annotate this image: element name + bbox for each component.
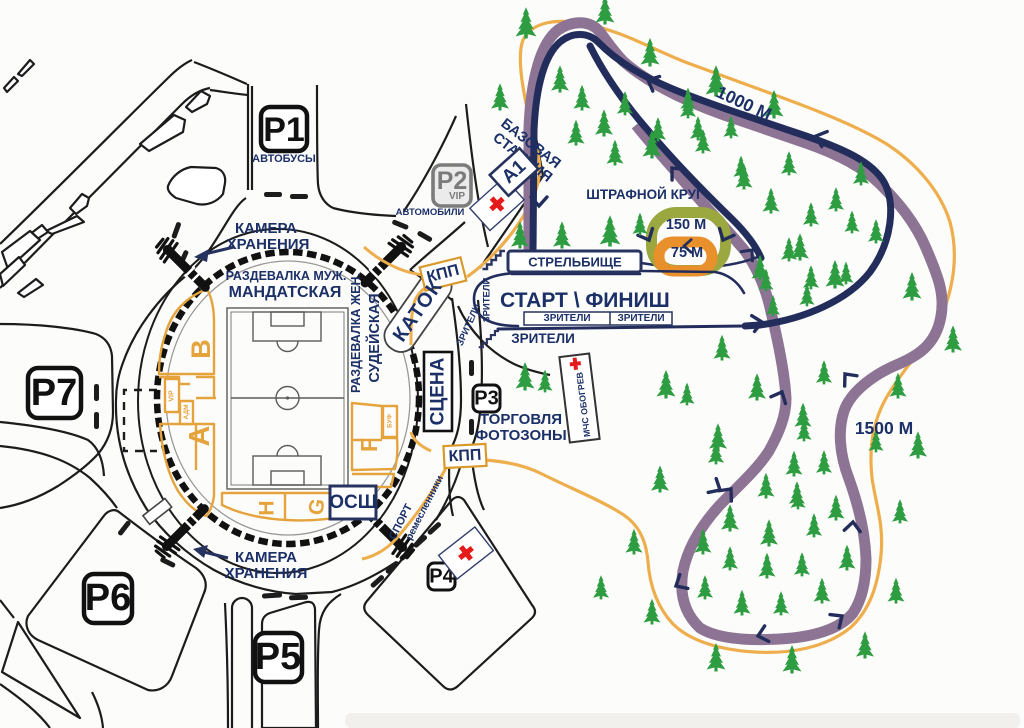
svg-text:Н: Н [256,500,279,515]
svg-text:Р6: Р6 [85,577,131,619]
svg-text:ТОРГОВЛЯ: ТОРГОВЛЯ [480,411,562,428]
svg-text:ХРАНЕНИЯ: ХРАНЕНИЯ [225,565,308,582]
svg-text:ЗРИТЕЛИ: ЗРИТЕЛИ [543,313,590,324]
svg-text:ЗРИТЕЛИ: ЗРИТЕЛИ [617,313,664,324]
svg-text:ФОТОЗОНЫ: ФОТОЗОНЫ [475,427,566,444]
svg-text:БУФ: БУФ [387,414,394,428]
svg-text:СУДЕЙСКАЯ: СУДЕЙСКАЯ [365,293,383,382]
svg-text:Р1: Р1 [263,111,305,149]
svg-text:КАМЕРА: КАМЕРА [235,220,297,237]
svg-text:Р3: Р3 [474,388,498,410]
svg-text:РАЗДЕВАЛКА МУЖ.: РАЗДЕВАЛКА МУЖ. [226,269,347,283]
svg-text:75 М: 75 М [671,245,703,261]
svg-text:ЗРИТЕЛИ: ЗРИТЕЛИ [511,331,575,346]
svg-text:ШТРАФНОЙ КРУГ: ШТРАФНОЙ КРУГ [586,187,704,202]
svg-text:КАМЕРА: КАМЕРА [235,549,297,566]
svg-text:В: В [186,339,216,359]
svg-text:МАНДАТСКАЯ: МАНДАТСКАЯ [229,284,342,301]
svg-text:VIP: VIP [169,390,176,402]
svg-text:F: F [356,438,382,452]
svg-text:ОСШ: ОСШ [329,492,377,513]
svg-text:Р5: Р5 [255,636,301,678]
svg-text:СТАРТ \ ФИНИШ: СТАРТ \ ФИНИШ [500,289,670,312]
svg-text:СТРЕЛЬБИЩЕ: СТРЕЛЬБИЩЕ [528,255,622,270]
svg-text:АВТОБУСЫ: АВТОБУСЫ [252,153,316,165]
svg-text:VIP: VIP [449,191,465,202]
svg-text:АВТОМОБИЛИ: АВТОМОБИЛИ [396,207,465,218]
svg-text:СЦЕНА: СЦЕНА [428,357,449,425]
svg-text:Р7: Р7 [31,372,77,414]
svg-text:АДМ: АДМ [183,405,190,420]
svg-text:РАЗДЕВАЛКА ЖЕН.: РАЗДЕВАЛКА ЖЕН. [349,273,363,393]
svg-text:150 М: 150 М [666,217,706,233]
svg-text:ЗРИТЕЛИ: ЗРИТЕЛИ [482,277,493,322]
svg-text:1500 М: 1500 М [855,418,913,438]
svg-text:А: А [184,425,216,446]
svg-text:КПП: КПП [448,447,482,466]
svg-text:ХРАНЕНИЯ: ХРАНЕНИЯ [227,236,310,253]
